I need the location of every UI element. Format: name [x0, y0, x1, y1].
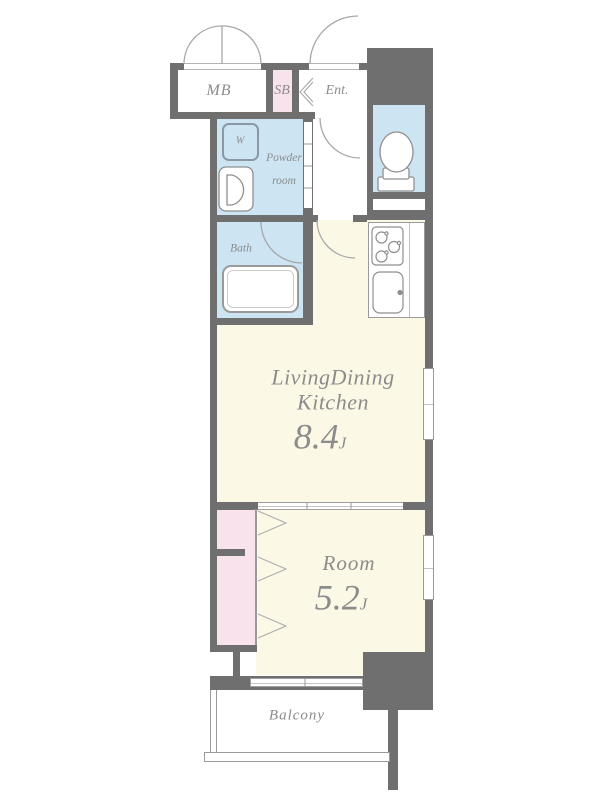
closet-front-line: [255, 509, 257, 645]
ldk-label: LivingDining Kitchen: [271, 365, 394, 416]
powder-room-label: Powder room: [266, 147, 302, 193]
meter-box-label: MB: [206, 82, 231, 100]
washing-machine-label: W: [236, 135, 244, 147]
meter-box-door-opening: [184, 63, 261, 70]
pillar-bottom-right: [363, 652, 433, 710]
hall-floor: [313, 112, 367, 215]
bath-label: Bath: [230, 242, 252, 255]
wall-bottom-strip: [388, 710, 398, 790]
toilet-alcove: [373, 199, 425, 210]
wall-powder-bath: [210, 215, 315, 222]
wall-left-main: [210, 112, 217, 652]
floorplan-canvas: MB SB Ent. W Powder room Bath LivingDini…: [0, 0, 600, 800]
bedroom-size-label: 5.2J: [315, 577, 368, 618]
wall-sb-ent: [292, 63, 299, 112]
bathtub: [222, 265, 299, 313]
window-bedroom: [423, 535, 434, 600]
wall-bath-bottom: [210, 318, 313, 325]
wall-closet-stub: [217, 549, 245, 556]
balcony-label: Balcony: [269, 707, 325, 724]
powder-sliding-door: [304, 122, 312, 208]
meter-box-double-door-arcs: [184, 26, 261, 64]
sliding-door-balcony: [250, 678, 363, 687]
pillar-top-right: [367, 48, 433, 105]
wall-right-upper: [425, 48, 433, 368]
shoe-box-label: SB: [274, 83, 290, 99]
closet-floor: [217, 509, 256, 645]
wall-divider-right: [403, 502, 433, 510]
wall-mb-sb: [266, 63, 273, 119]
kitchen-counter-edge: [409, 223, 410, 317]
toilet-room-floor: [373, 105, 425, 192]
window-ldk: [423, 368, 434, 440]
sliding-door-ldk-bedroom: [258, 502, 403, 510]
entrance-door-arc: [310, 16, 358, 64]
balcony-left-rail: [210, 690, 217, 753]
balcony-bottom-rail: [204, 752, 390, 762]
bedroom-label: Room: [323, 551, 376, 575]
kitchen-counter: [368, 222, 425, 318]
wall-right-mid: [425, 440, 433, 535]
wall-toilet-left: [367, 105, 373, 220]
entrance-label: Ent.: [326, 83, 349, 99]
wall-hall-ldk-a: [313, 215, 318, 222]
ldk-size-label: 8.4J: [294, 416, 347, 457]
wall-toilet-bottom: [367, 192, 433, 199]
wall-left-top: [170, 63, 178, 119]
wall-mb-bottom: [170, 112, 315, 119]
wall-hall-ldk-b: [353, 215, 367, 222]
wall-divider-left: [210, 502, 258, 510]
entrance-door-opening: [309, 63, 359, 70]
wall-right-lower: [425, 600, 433, 660]
niche-floor: [217, 651, 233, 676]
wall-kitchen-top: [367, 210, 433, 220]
